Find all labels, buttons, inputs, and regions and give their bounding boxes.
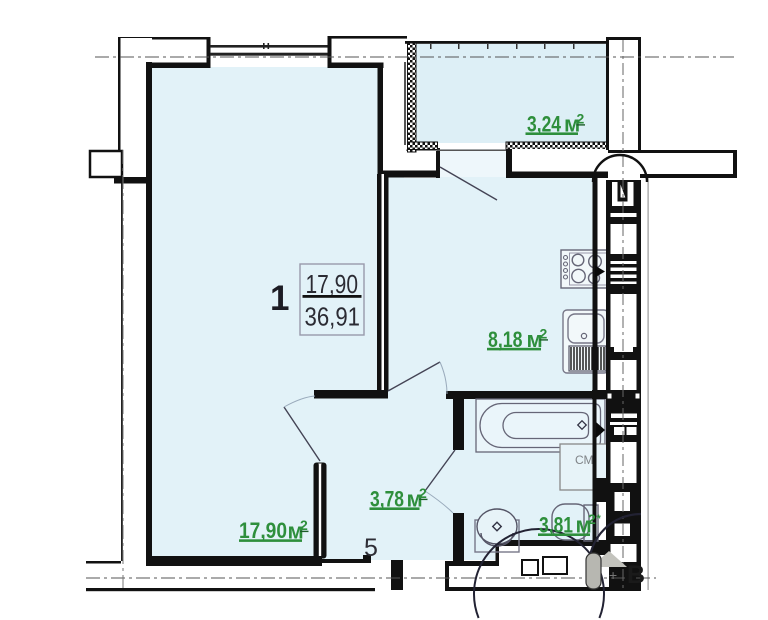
svg-text:2: 2	[540, 326, 548, 342]
svg-text:В: В	[627, 561, 645, 589]
svg-text:2: 2	[588, 511, 596, 527]
svg-text:+: +	[609, 567, 617, 583]
svg-text:*: *	[597, 513, 602, 525]
svg-text:36,91: 36,91	[305, 302, 361, 332]
svg-text:СМ: СМ	[575, 453, 594, 467]
svg-text:17,90: 17,90	[306, 269, 359, 299]
svg-text:1: 1	[270, 279, 289, 318]
svg-text:2: 2	[577, 111, 585, 127]
svg-text:17,90: 17,90	[239, 518, 287, 543]
svg-text:2: 2	[300, 517, 308, 533]
svg-text:2: 2	[419, 485, 427, 501]
svg-text:5: 5	[364, 534, 378, 562]
